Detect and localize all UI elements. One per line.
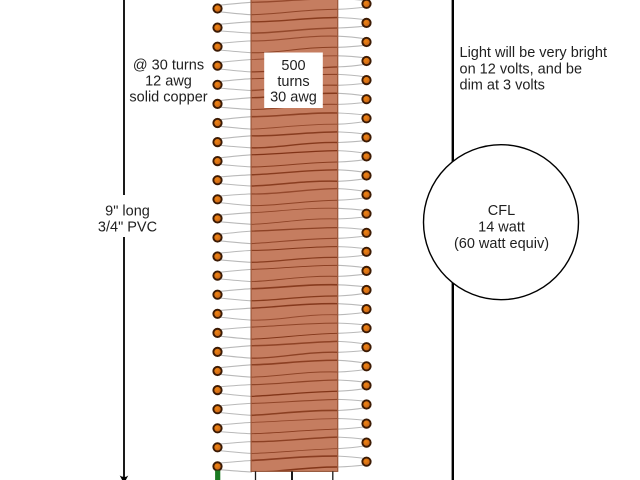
svg-text:turns: turns: [277, 74, 309, 90]
svg-text:3/4" PVC: 3/4" PVC: [98, 220, 157, 236]
svg-text:solid copper: solid copper: [129, 90, 207, 106]
svg-text:12 awg: 12 awg: [145, 74, 192, 90]
svg-text:9" long: 9" long: [105, 204, 150, 220]
svg-text:dim at 3 volts: dim at 3 volts: [460, 78, 545, 94]
svg-text:30 awg: 30 awg: [270, 90, 317, 106]
svg-text:Light will be very bright: Light will be very bright: [460, 45, 608, 61]
svg-text:on 12 volts, and be: on 12 volts, and be: [460, 61, 583, 77]
svg-text:500: 500: [281, 58, 305, 74]
svg-text:(60 watt equiv): (60 watt equiv): [454, 236, 549, 252]
svg-text:CFL: CFL: [488, 203, 515, 219]
svg-text:14 watt: 14 watt: [478, 220, 525, 236]
svg-text:@ 30 turns: @ 30 turns: [133, 58, 204, 74]
